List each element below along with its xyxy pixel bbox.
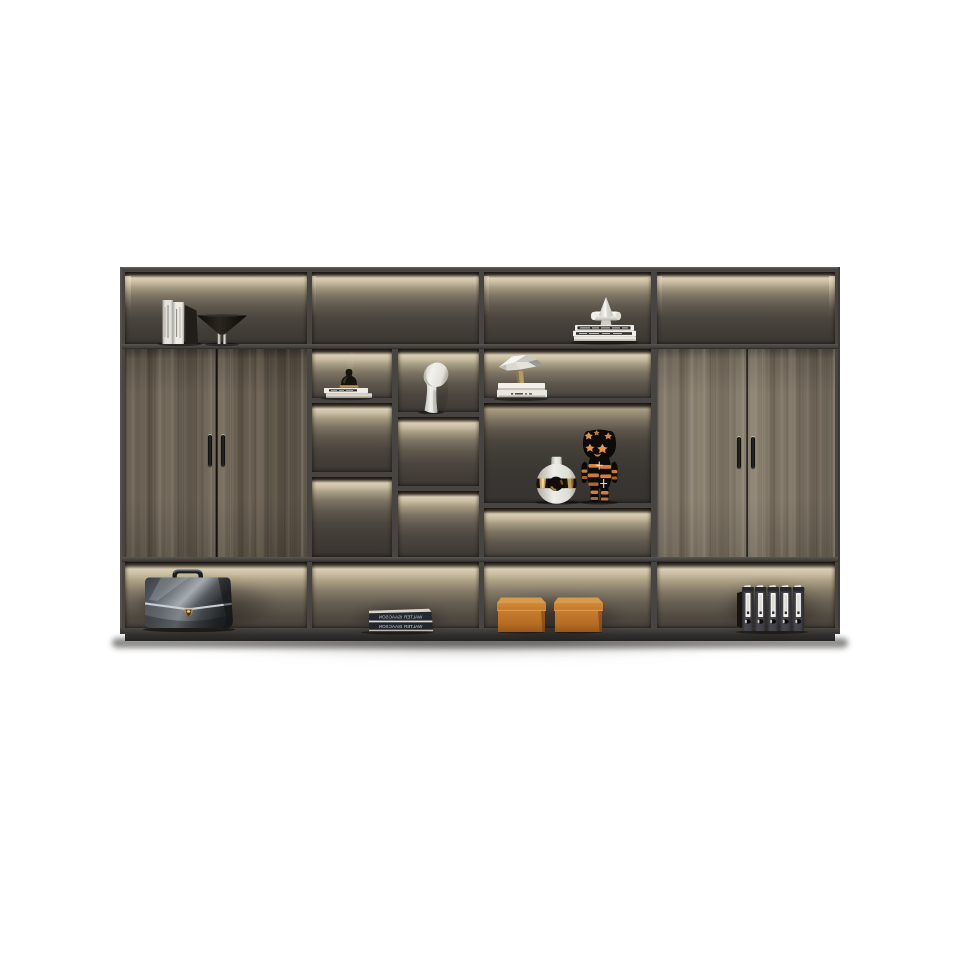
svg-text:WALTER ISAACSON: WALTER ISAACSON bbox=[379, 624, 423, 629]
svg-text:WALTER ISAACSON: WALTER ISAACSON bbox=[379, 615, 423, 620]
